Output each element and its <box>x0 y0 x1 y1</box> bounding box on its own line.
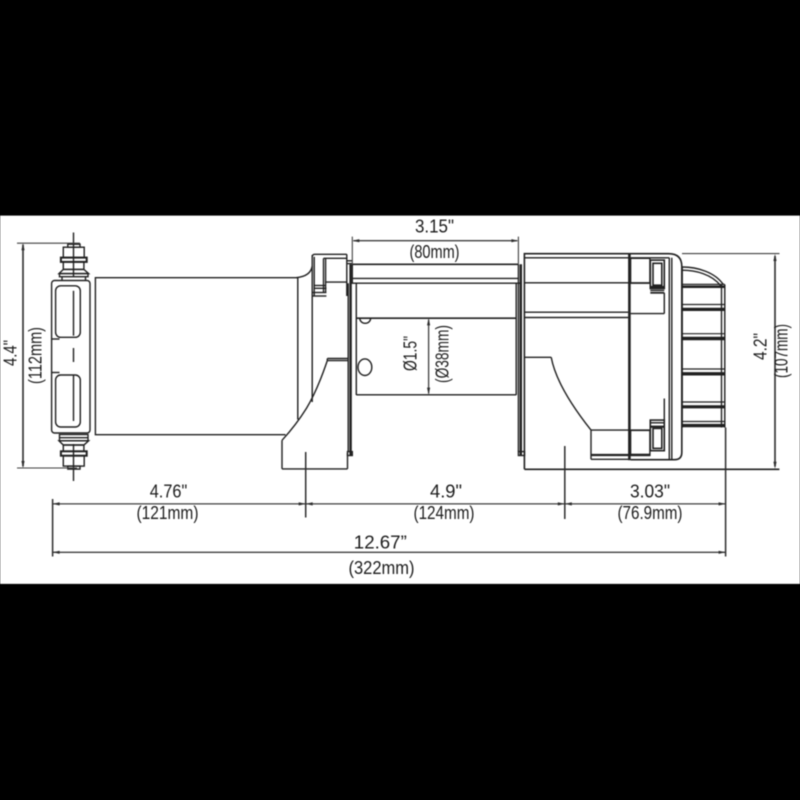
svg-text:3.15": 3.15" <box>415 217 454 237</box>
svg-text:Ø1.5": Ø1.5" <box>401 336 421 371</box>
svg-text:4.4": 4.4" <box>1 340 21 366</box>
svg-text:(Ø38mm): (Ø38mm) <box>433 325 453 383</box>
svg-text:(124mm): (124mm) <box>414 503 475 523</box>
svg-text:(76.9mm): (76.9mm) <box>618 503 683 523</box>
svg-text:3.03": 3.03" <box>630 481 670 501</box>
svg-text:4.9": 4.9" <box>430 481 462 501</box>
svg-text:4.2": 4.2" <box>751 333 771 360</box>
svg-text:(112mm): (112mm) <box>26 327 46 384</box>
svg-text:12.67”: 12.67” <box>354 532 407 552</box>
svg-text:(80mm): (80mm) <box>410 242 460 262</box>
svg-text:4.76": 4.76" <box>150 482 188 502</box>
svg-text:(121mm): (121mm) <box>137 503 199 523</box>
svg-text:(107mm): (107mm) <box>772 324 792 378</box>
svg-text:(322mm): (322mm) <box>349 558 415 578</box>
